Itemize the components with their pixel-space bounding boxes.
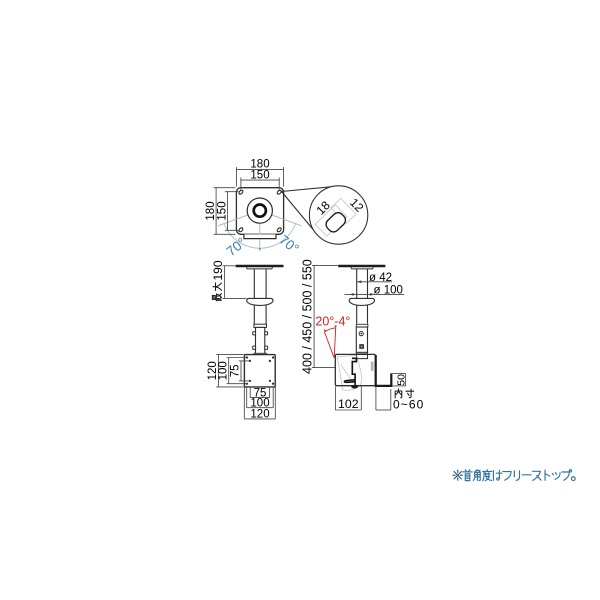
svg-text:0~60: 0~60 xyxy=(393,398,424,412)
svg-text:180: 180 xyxy=(205,201,217,220)
svg-text:150: 150 xyxy=(250,169,269,181)
svg-text:75: 75 xyxy=(229,365,241,378)
svg-text:400 / 450 / 500 / 550: 400 / 450 / 500 / 550 xyxy=(300,259,314,374)
svg-text:20°-4°: 20°-4° xyxy=(315,314,350,328)
svg-text:120: 120 xyxy=(250,409,269,421)
svg-text:150: 150 xyxy=(217,201,229,220)
svg-text:50: 50 xyxy=(395,374,407,386)
svg-text:100: 100 xyxy=(217,361,229,380)
svg-text:102: 102 xyxy=(338,397,359,411)
svg-text:190: 190 xyxy=(211,260,225,280)
